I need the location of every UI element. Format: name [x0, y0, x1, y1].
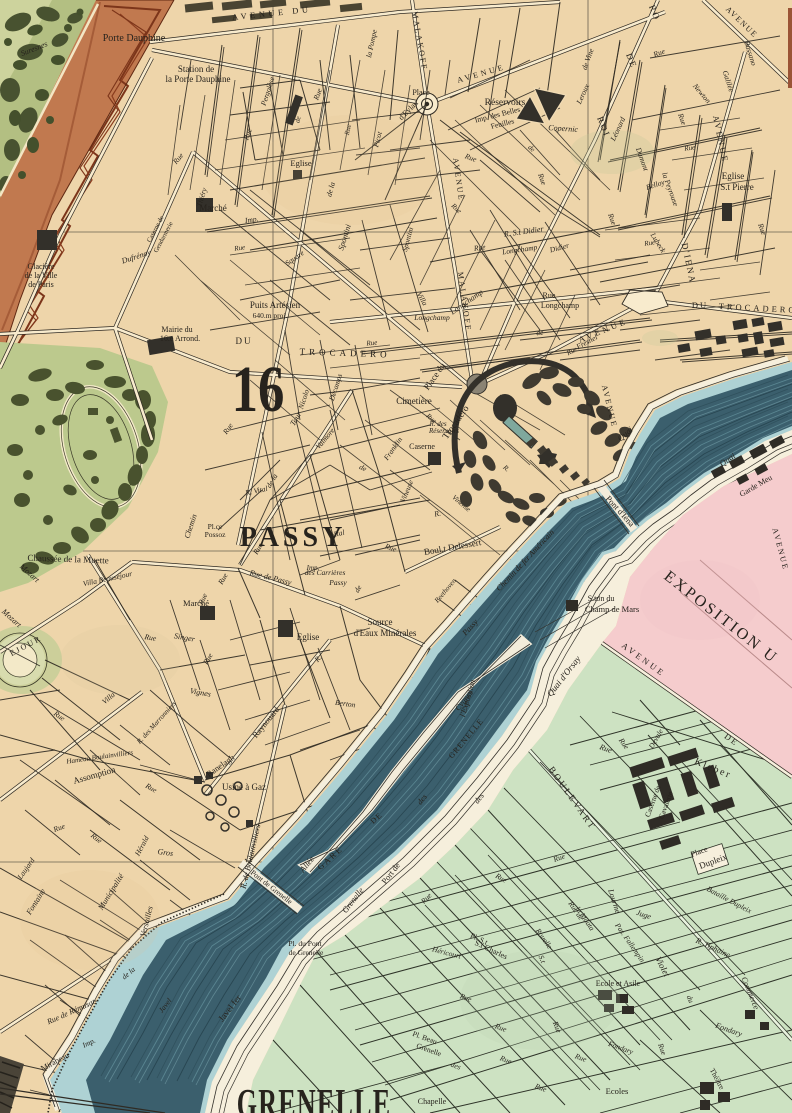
- svg-text:Rue: Rue: [365, 339, 378, 348]
- svg-text:16.e Arrond.: 16.e Arrond.: [160, 334, 200, 343]
- svg-text:de la Ville: de la Ville: [25, 271, 58, 280]
- svg-text:640.m proj.: 640.m proj.: [253, 311, 288, 320]
- svg-text:Ecoles: Ecoles: [606, 1086, 629, 1096]
- svg-text:16: 16: [232, 352, 285, 425]
- svg-text:Ecole et Asile: Ecole et Asile: [596, 979, 641, 988]
- svg-text:Eglise: Eglise: [297, 632, 320, 642]
- svg-text:Rue: Rue: [472, 242, 486, 253]
- svg-text:Champ de Mars: Champ de Mars: [585, 604, 639, 614]
- svg-text:Réservoirs: Réservoirs: [485, 98, 526, 108]
- svg-text:d'Eaux Minérales: d'Eaux Minérales: [354, 628, 417, 638]
- svg-text:GRENELLE: GRENELLE: [237, 1081, 392, 1113]
- svg-text:Eglise: Eglise: [722, 171, 745, 181]
- svg-text:Porte Dauphine: Porte Dauphine: [103, 33, 166, 44]
- svg-text:Rue: Rue: [233, 243, 246, 253]
- svg-text:S.ton du: S.ton du: [588, 594, 615, 603]
- svg-text:Rue: Rue: [683, 143, 696, 153]
- svg-text:S.t Pierre: S.t Pierre: [720, 182, 754, 192]
- svg-text:DU: DU: [236, 336, 253, 346]
- svg-text:Longchamp: Longchamp: [541, 301, 579, 310]
- svg-text:Place: Place: [412, 88, 430, 97]
- svg-text:Possoz: Possoz: [205, 530, 227, 539]
- svg-text:Rue: Rue: [543, 291, 556, 300]
- svg-text:Mairie du: Mairie du: [161, 325, 192, 334]
- svg-text:de Paris: de Paris: [28, 280, 54, 289]
- svg-text:Chapelle: Chapelle: [418, 1097, 447, 1106]
- svg-text:de Grenelle: de Grenelle: [289, 948, 324, 957]
- svg-text:Station de: Station de: [178, 64, 214, 74]
- svg-text:Glacière: Glacière: [27, 262, 55, 271]
- svg-text:Cimetière: Cimetière: [396, 396, 432, 406]
- svg-text:Puits Artésien: Puits Artésien: [250, 300, 301, 310]
- svg-text:Source: Source: [368, 617, 393, 627]
- svg-text:Caserne: Caserne: [409, 442, 435, 451]
- svg-text:Eglise: Eglise: [290, 158, 311, 168]
- svg-text:Passy: Passy: [328, 578, 347, 587]
- svg-text:des Carrières: des Carrières: [305, 568, 346, 577]
- svg-text:DU: DU: [692, 300, 708, 310]
- svg-text:Pl. du Pont: Pl. du Pont: [288, 939, 322, 948]
- svg-text:la Porte Dauphine: la Porte Dauphine: [166, 74, 231, 84]
- svg-text:Longchamp: Longchamp: [413, 313, 450, 322]
- svg-text:Usine à Gaz: Usine à Gaz: [222, 782, 266, 792]
